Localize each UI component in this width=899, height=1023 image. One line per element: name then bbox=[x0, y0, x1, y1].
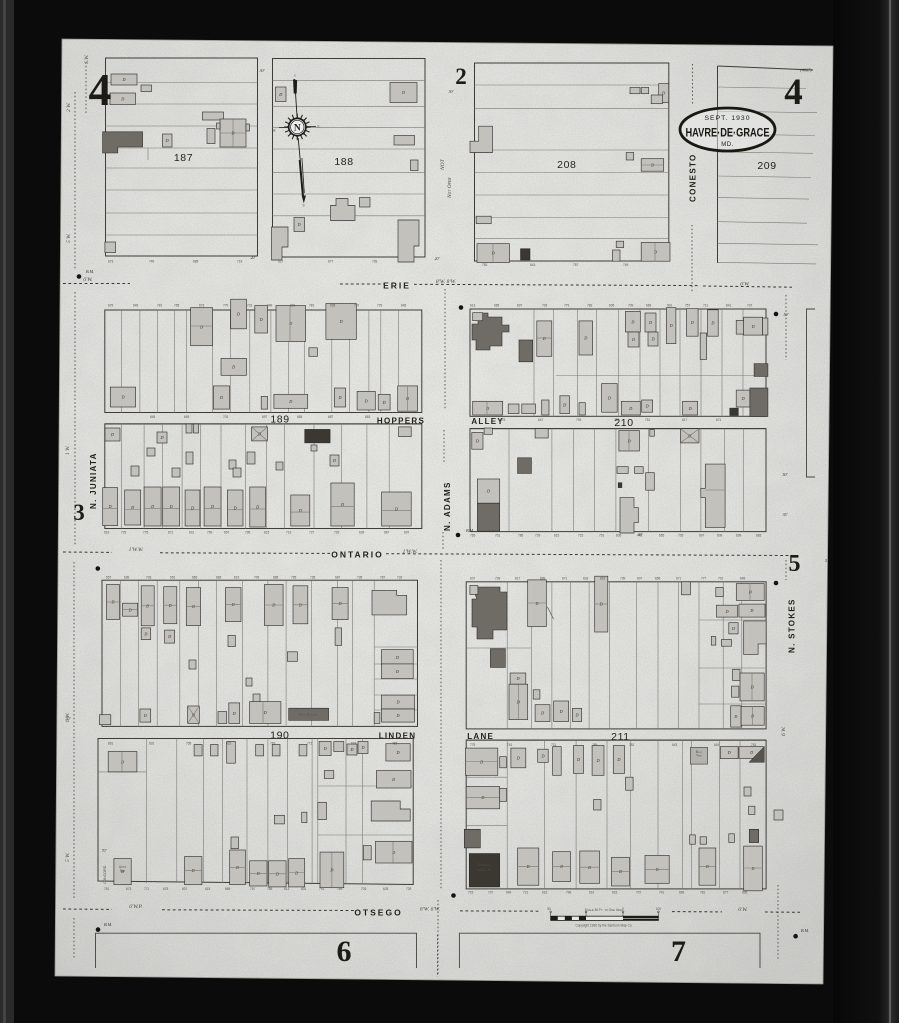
svg-text:50': 50' bbox=[782, 472, 787, 477]
svg-text:741: 741 bbox=[659, 891, 665, 895]
svg-text:D: D bbox=[395, 700, 399, 705]
svg-text:D: D bbox=[648, 320, 652, 325]
svg-text:20': 20' bbox=[434, 256, 439, 261]
svg-text:709: 709 bbox=[628, 304, 634, 308]
svg-text:601: 601 bbox=[189, 531, 195, 535]
svg-text:5: 5 bbox=[789, 551, 801, 577]
svg-text:0: 0 bbox=[622, 907, 624, 911]
svg-text:D: D bbox=[395, 713, 399, 718]
svg-text:D: D bbox=[199, 324, 203, 329]
svg-text:785: 785 bbox=[518, 534, 524, 538]
svg-text:D: D bbox=[627, 438, 631, 443]
svg-text:D: D bbox=[120, 96, 124, 101]
svg-text:691: 691 bbox=[667, 304, 673, 308]
svg-text:781: 781 bbox=[751, 743, 757, 747]
svg-text:671: 671 bbox=[168, 531, 174, 535]
svg-text:735: 735 bbox=[357, 576, 363, 580]
svg-text:D: D bbox=[559, 709, 563, 714]
svg-text:D: D bbox=[165, 138, 169, 143]
svg-text:673: 673 bbox=[199, 304, 205, 308]
svg-text:619: 619 bbox=[600, 577, 606, 581]
svg-text:757: 757 bbox=[685, 304, 691, 308]
svg-text:D: D bbox=[628, 406, 632, 411]
svg-text:781: 781 bbox=[700, 891, 706, 895]
svg-text:749: 749 bbox=[149, 260, 155, 264]
svg-text:D: D bbox=[645, 404, 649, 409]
svg-text:677: 677 bbox=[328, 260, 334, 264]
svg-text:N. ADAMS: N. ADAMS bbox=[443, 481, 452, 531]
svg-text:689: 689 bbox=[225, 887, 231, 891]
svg-text:697: 697 bbox=[699, 534, 705, 538]
svg-text:729: 729 bbox=[334, 531, 340, 535]
svg-text:615: 615 bbox=[612, 891, 618, 895]
svg-text:7: 7 bbox=[671, 935, 686, 968]
svg-text:789: 789 bbox=[614, 418, 620, 422]
svg-text:D: D bbox=[401, 90, 405, 95]
svg-text:671: 671 bbox=[716, 418, 722, 422]
svg-text:6'W.P.: 6'W.P. bbox=[129, 904, 142, 910]
svg-text:D: D bbox=[167, 634, 171, 639]
svg-text:729: 729 bbox=[542, 304, 548, 308]
svg-text:D: D bbox=[337, 395, 341, 400]
svg-text:LINDEN: LINDEN bbox=[379, 732, 417, 741]
svg-text:605: 605 bbox=[609, 304, 615, 308]
svg-text:CONCORD: CONCORD bbox=[103, 865, 107, 884]
svg-text:D: D bbox=[542, 336, 546, 341]
svg-text:D: D bbox=[382, 400, 386, 405]
svg-text:NOT: NOT bbox=[440, 158, 446, 171]
svg-text:5 W.: 5 W. bbox=[65, 852, 71, 862]
svg-text:E.: E. bbox=[318, 125, 321, 129]
svg-text:1 W.: 1 W. bbox=[65, 445, 71, 455]
svg-text:621: 621 bbox=[226, 742, 232, 746]
svg-text:763: 763 bbox=[270, 742, 276, 746]
svg-text:703: 703 bbox=[361, 887, 367, 891]
svg-text:(4067): (4067) bbox=[800, 68, 812, 73]
svg-text:703: 703 bbox=[146, 576, 152, 580]
svg-text:751: 751 bbox=[104, 887, 110, 891]
svg-text:617: 617 bbox=[682, 418, 688, 422]
svg-text:737: 737 bbox=[747, 304, 753, 308]
svg-text:6'W.: 6'W. bbox=[83, 277, 92, 283]
svg-text:655: 655 bbox=[659, 534, 665, 538]
svg-text:639: 639 bbox=[359, 531, 365, 535]
svg-text:D: D bbox=[596, 758, 600, 763]
svg-text:D: D bbox=[741, 396, 745, 401]
svg-text:30': 30' bbox=[259, 68, 264, 73]
svg-text:D: D bbox=[669, 323, 673, 328]
svg-text:633: 633 bbox=[583, 577, 589, 581]
svg-text:673: 673 bbox=[126, 887, 132, 891]
svg-text:781: 781 bbox=[157, 304, 163, 308]
svg-text:619: 619 bbox=[234, 576, 240, 580]
svg-text:D: D bbox=[749, 608, 753, 613]
svg-text:D: D bbox=[616, 757, 620, 762]
svg-text:S.W.: S.W. bbox=[84, 54, 90, 64]
svg-text:647: 647 bbox=[538, 418, 544, 422]
svg-text:777: 777 bbox=[701, 577, 707, 581]
svg-text:B.M.: B.M. bbox=[466, 528, 474, 533]
svg-text:665: 665 bbox=[297, 415, 303, 419]
svg-text:741: 741 bbox=[507, 743, 513, 747]
svg-text:781: 781 bbox=[309, 304, 315, 308]
svg-text:643: 643 bbox=[672, 743, 678, 747]
svg-text:6'W.: 6'W. bbox=[738, 907, 747, 913]
svg-text:D: D bbox=[650, 337, 654, 342]
svg-text:765: 765 bbox=[470, 534, 476, 538]
svg-text:D: D bbox=[231, 364, 235, 369]
svg-text:641: 641 bbox=[726, 304, 732, 308]
svg-text:B.M.: B.M. bbox=[104, 922, 112, 927]
svg-text:675: 675 bbox=[500, 418, 506, 422]
svg-text:795: 795 bbox=[291, 576, 297, 580]
svg-text:679: 679 bbox=[108, 304, 114, 308]
svg-text:605: 605 bbox=[742, 891, 748, 895]
svg-text:735: 735 bbox=[310, 576, 316, 580]
svg-text:D: D bbox=[329, 868, 333, 873]
svg-text:100: 100 bbox=[656, 907, 662, 911]
svg-text:721: 721 bbox=[523, 891, 529, 895]
svg-text:D: D bbox=[364, 398, 368, 403]
svg-text:ONTARIO: ONTARIO bbox=[331, 550, 384, 560]
svg-text:677: 677 bbox=[723, 891, 729, 895]
svg-text:723: 723 bbox=[247, 304, 253, 308]
svg-text:D: D bbox=[562, 402, 566, 407]
svg-text:35': 35' bbox=[782, 512, 787, 517]
svg-text:645: 645 bbox=[150, 415, 156, 419]
svg-text:671: 671 bbox=[562, 577, 568, 581]
svg-text:50: 50 bbox=[547, 907, 551, 911]
svg-text:D: D bbox=[688, 406, 692, 411]
svg-text:669: 669 bbox=[192, 576, 198, 580]
svg-text:6 W.: 6 W. bbox=[781, 726, 787, 736]
svg-text:B.M.: B.M. bbox=[801, 928, 809, 933]
svg-text:687: 687 bbox=[335, 576, 341, 580]
svg-text:D: D bbox=[486, 489, 490, 494]
svg-text:745: 745 bbox=[637, 534, 643, 538]
svg-text:D: D bbox=[395, 750, 399, 755]
svg-text:619: 619 bbox=[589, 891, 595, 895]
svg-text:190: 190 bbox=[270, 730, 289, 742]
svg-text:685: 685 bbox=[193, 260, 199, 264]
svg-text:D: D bbox=[232, 711, 236, 716]
svg-text:189: 189 bbox=[270, 414, 289, 426]
svg-text:669: 669 bbox=[646, 304, 652, 308]
svg-text:D: D bbox=[121, 77, 125, 82]
svg-text:797: 797 bbox=[354, 304, 360, 308]
svg-text:D: D bbox=[391, 777, 395, 782]
svg-text:683: 683 bbox=[756, 534, 762, 538]
svg-text:719: 719 bbox=[237, 260, 243, 264]
svg-text:651: 651 bbox=[108, 742, 114, 746]
svg-text:D: D bbox=[731, 626, 735, 631]
svg-text:D: D bbox=[724, 609, 728, 614]
svg-text:605: 605 bbox=[330, 304, 336, 308]
svg-text:729: 729 bbox=[377, 304, 383, 308]
svg-text:D: D bbox=[110, 432, 114, 437]
svg-text:50': 50' bbox=[783, 312, 788, 317]
svg-text:D: D bbox=[733, 714, 737, 719]
svg-text:671: 671 bbox=[676, 577, 682, 581]
svg-text:SCALE 50 FT. TO ONE INCH.: SCALE 50 FT. TO ONE INCH. bbox=[585, 908, 624, 912]
svg-text:D: D bbox=[395, 655, 399, 660]
svg-text:619: 619 bbox=[104, 531, 110, 535]
svg-text:649: 649 bbox=[184, 415, 190, 419]
svg-text:D: D bbox=[278, 92, 282, 97]
svg-text:791: 791 bbox=[718, 577, 724, 581]
svg-text:20': 20' bbox=[250, 255, 255, 260]
svg-text:615: 615 bbox=[205, 887, 211, 891]
svg-text:D: D bbox=[574, 713, 578, 718]
svg-text:6'W.: 6'W. bbox=[740, 282, 749, 288]
svg-text:4: 4 bbox=[89, 64, 112, 115]
svg-text:729: 729 bbox=[121, 531, 127, 535]
svg-text:795: 795 bbox=[245, 531, 251, 535]
svg-text:729: 729 bbox=[535, 534, 541, 538]
svg-text:D: D bbox=[540, 711, 544, 716]
svg-text:799: 799 bbox=[566, 891, 572, 895]
svg-text:208: 208 bbox=[557, 159, 576, 171]
svg-text:607: 607 bbox=[637, 577, 643, 581]
svg-text:755: 755 bbox=[186, 742, 192, 746]
svg-text:615: 615 bbox=[542, 891, 548, 895]
svg-text:613: 613 bbox=[470, 304, 476, 308]
svg-text:D: D bbox=[540, 753, 544, 758]
svg-text:727: 727 bbox=[309, 531, 315, 535]
svg-text:REP: REP bbox=[120, 869, 126, 873]
svg-text:N. STOKES: N. STOKES bbox=[788, 598, 797, 653]
svg-text:669: 669 bbox=[679, 891, 685, 895]
svg-text:711: 711 bbox=[703, 304, 708, 308]
svg-text:D: D bbox=[516, 756, 520, 761]
svg-text:HAVRE·DE·GRACE: HAVRE·DE·GRACE bbox=[686, 126, 770, 140]
svg-text:715: 715 bbox=[468, 891, 474, 895]
svg-text:HOPPERS: HOPPERS bbox=[377, 417, 425, 426]
svg-text:707: 707 bbox=[488, 891, 494, 895]
svg-text:739: 739 bbox=[372, 260, 378, 264]
svg-text:701: 701 bbox=[495, 534, 501, 538]
svg-text:715: 715 bbox=[578, 534, 584, 538]
svg-text:D: D bbox=[259, 317, 263, 322]
svg-text:663: 663 bbox=[365, 415, 371, 419]
svg-text:D: D bbox=[475, 439, 479, 444]
svg-text:733: 733 bbox=[397, 576, 403, 580]
svg-text:707: 707 bbox=[636, 891, 642, 895]
svg-text:D: D bbox=[323, 746, 327, 751]
svg-text:607: 607 bbox=[470, 577, 476, 581]
svg-text:619: 619 bbox=[714, 743, 720, 747]
svg-text:6'W. 6'W.: 6'W. 6'W. bbox=[420, 907, 440, 913]
svg-text:625: 625 bbox=[383, 887, 389, 891]
svg-text:687: 687 bbox=[328, 415, 334, 419]
svg-text:D: D bbox=[515, 676, 519, 681]
svg-text:5 W.: 5 W. bbox=[66, 233, 72, 243]
svg-text:799: 799 bbox=[207, 531, 213, 535]
svg-text:787: 787 bbox=[380, 576, 386, 580]
svg-text:713: 713 bbox=[286, 531, 292, 535]
svg-text:W.: W. bbox=[273, 129, 277, 133]
svg-text:757: 757 bbox=[573, 263, 579, 267]
svg-text:779: 779 bbox=[564, 304, 570, 308]
svg-text:767: 767 bbox=[250, 887, 256, 891]
svg-text:709: 709 bbox=[254, 576, 260, 580]
svg-text:783: 783 bbox=[392, 742, 398, 746]
svg-text:187: 187 bbox=[174, 152, 193, 164]
svg-text:CONESTO: CONESTO bbox=[689, 153, 698, 202]
svg-text:OTSEGO: OTSEGO bbox=[354, 908, 402, 918]
svg-text:739: 739 bbox=[620, 577, 626, 581]
svg-text:MD.: MD. bbox=[721, 142, 734, 148]
svg-text:D: D bbox=[516, 700, 520, 705]
svg-text:S: S bbox=[303, 204, 305, 208]
svg-text:D: D bbox=[710, 321, 714, 326]
svg-text:D: D bbox=[727, 750, 731, 755]
svg-text:D: D bbox=[607, 396, 611, 401]
svg-text:D: D bbox=[288, 399, 292, 404]
svg-text:615: 615 bbox=[554, 534, 560, 538]
svg-text:5: 5 bbox=[825, 558, 827, 563]
svg-text:771: 771 bbox=[307, 742, 313, 746]
svg-text:D: D bbox=[143, 631, 147, 636]
svg-text:4: 4 bbox=[784, 72, 803, 113]
svg-text:D: D bbox=[349, 747, 353, 752]
svg-text:D: D bbox=[236, 312, 240, 317]
svg-text:703: 703 bbox=[223, 415, 229, 419]
svg-text:ERIE: ERIE bbox=[383, 281, 411, 291]
svg-text:211: 211 bbox=[611, 731, 630, 743]
svg-text:659: 659 bbox=[655, 577, 661, 581]
svg-text:657: 657 bbox=[106, 576, 112, 580]
svg-text:609: 609 bbox=[717, 534, 723, 538]
svg-text:779: 779 bbox=[223, 304, 229, 308]
svg-text:1'W.W.: 1'W.W. bbox=[129, 547, 144, 553]
svg-text:D: D bbox=[749, 750, 753, 755]
svg-text:D: D bbox=[750, 685, 754, 690]
svg-text:D: D bbox=[219, 395, 223, 400]
svg-text:D: D bbox=[576, 757, 580, 762]
svg-text:631: 631 bbox=[149, 742, 155, 746]
svg-text:705: 705 bbox=[678, 534, 684, 538]
svg-text:SEPT. 1930: SEPT. 1930 bbox=[705, 115, 751, 122]
svg-text:N. JUNIATA: N. JUNIATA bbox=[89, 452, 98, 509]
svg-text:B.M.: B.M. bbox=[86, 269, 94, 274]
svg-text:LANE: LANE bbox=[467, 732, 494, 741]
svg-text:697: 697 bbox=[517, 304, 523, 308]
svg-text:781: 781 bbox=[629, 743, 635, 747]
svg-text:651: 651 bbox=[170, 576, 176, 580]
svg-text:793: 793 bbox=[576, 418, 582, 422]
svg-text:613: 613 bbox=[284, 887, 290, 891]
svg-text:601: 601 bbox=[290, 304, 296, 308]
svg-text:789: 789 bbox=[592, 743, 598, 747]
svg-text:697: 697 bbox=[262, 415, 268, 419]
svg-text:D: D bbox=[120, 395, 124, 400]
svg-text:683: 683 bbox=[216, 576, 222, 580]
svg-text:645: 645 bbox=[133, 304, 139, 308]
svg-text:627: 627 bbox=[278, 260, 284, 264]
svg-text:783: 783 bbox=[587, 304, 593, 308]
svg-text:D: D bbox=[750, 866, 754, 871]
svg-text:D: D bbox=[405, 396, 409, 401]
svg-text:70': 70' bbox=[65, 716, 70, 721]
svg-text:775: 775 bbox=[470, 743, 476, 747]
svg-text:769: 769 bbox=[337, 887, 343, 891]
svg-text:30': 30' bbox=[448, 89, 453, 94]
svg-text:755: 755 bbox=[267, 887, 273, 891]
svg-text:617: 617 bbox=[515, 577, 521, 581]
svg-text:D: D bbox=[690, 320, 694, 325]
svg-text:D: D bbox=[297, 222, 301, 227]
svg-text:D: D bbox=[631, 337, 635, 342]
svg-text:755: 755 bbox=[174, 304, 180, 308]
svg-text:615: 615 bbox=[264, 531, 270, 535]
svg-text:665: 665 bbox=[494, 304, 500, 308]
svg-text:645: 645 bbox=[401, 304, 407, 308]
svg-text:749: 749 bbox=[623, 263, 629, 267]
svg-text:D: D bbox=[339, 319, 343, 324]
svg-text:1'W.W.: 1'W.W. bbox=[403, 549, 418, 555]
svg-text:619: 619 bbox=[351, 742, 357, 746]
svg-text:D: D bbox=[751, 324, 755, 329]
svg-text:699: 699 bbox=[540, 577, 546, 581]
svg-text:D: D bbox=[143, 713, 147, 718]
svg-text:D: D bbox=[360, 745, 364, 750]
svg-text:Copyright 1930 by the Sanborn: Copyright 1930 by the Sanborn Map Co. bbox=[575, 924, 632, 928]
svg-text:643: 643 bbox=[530, 263, 536, 267]
svg-text:605: 605 bbox=[616, 534, 622, 538]
svg-text:771: 771 bbox=[144, 887, 150, 891]
svg-text:6: 6 bbox=[337, 935, 352, 968]
svg-text:D: D bbox=[583, 336, 587, 341]
svg-text:209: 209 bbox=[757, 160, 776, 172]
svg-text:D: D bbox=[332, 458, 336, 463]
svg-text:2 W.: 2 W. bbox=[66, 102, 72, 112]
svg-text:639: 639 bbox=[124, 576, 130, 580]
svg-text:649: 649 bbox=[506, 891, 512, 895]
svg-text:753: 753 bbox=[482, 263, 488, 267]
svg-text:645: 645 bbox=[740, 577, 746, 581]
svg-text:631: 631 bbox=[301, 887, 307, 891]
svg-text:751: 751 bbox=[319, 887, 325, 891]
svg-text:673: 673 bbox=[108, 260, 114, 264]
svg-text:697: 697 bbox=[404, 531, 410, 535]
svg-text:699: 699 bbox=[736, 534, 742, 538]
svg-text:687: 687 bbox=[384, 531, 390, 535]
svg-text:607: 607 bbox=[182, 887, 188, 891]
svg-text:729: 729 bbox=[406, 887, 412, 891]
svg-text:667: 667 bbox=[224, 531, 230, 535]
svg-text:D: D bbox=[395, 669, 399, 674]
svg-text:739: 739 bbox=[495, 577, 501, 581]
svg-text:188: 188 bbox=[334, 156, 353, 168]
svg-text:649: 649 bbox=[267, 304, 273, 308]
svg-text:721: 721 bbox=[551, 743, 557, 747]
svg-text:70': 70' bbox=[101, 848, 106, 853]
svg-text:8'W. 8'W.: 8'W. 8'W. bbox=[436, 279, 456, 285]
svg-text:D: D bbox=[750, 714, 754, 719]
svg-text:D: D bbox=[159, 435, 163, 440]
svg-text:675: 675 bbox=[163, 887, 169, 891]
svg-text:D: D bbox=[630, 319, 634, 324]
svg-text:775: 775 bbox=[143, 531, 149, 535]
svg-text:751: 751 bbox=[599, 534, 605, 538]
svg-text:751: 751 bbox=[645, 418, 651, 422]
svg-text:N: N bbox=[294, 123, 301, 133]
svg-text:685: 685 bbox=[273, 576, 279, 580]
svg-text:2: 2 bbox=[455, 64, 467, 89]
